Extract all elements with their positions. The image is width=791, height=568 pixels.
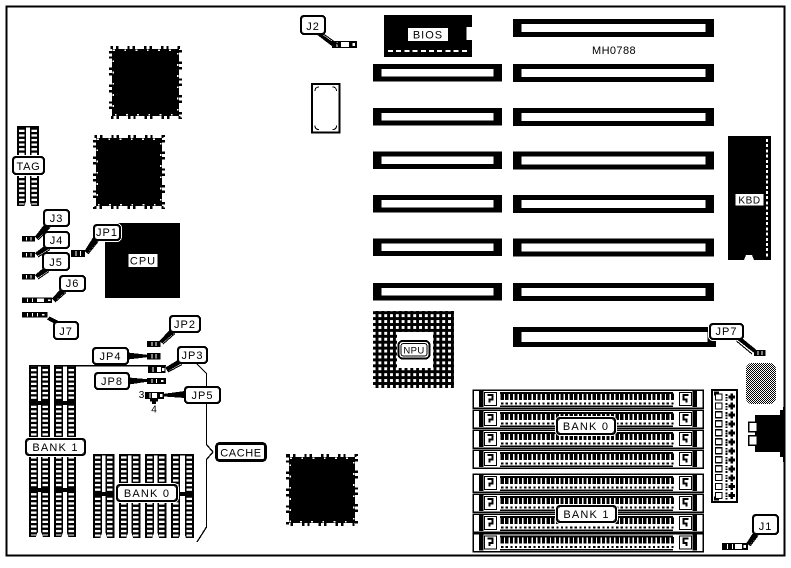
svg-text:BANK 1: BANK 1: [563, 509, 609, 521]
svg-text:CACHE: CACHE: [220, 448, 262, 460]
svg-text:4: 4: [151, 405, 157, 416]
svg-text:JP7: JP7: [716, 326, 738, 338]
svg-text:CPU: CPU: [130, 256, 156, 268]
svg-text:BANK 0: BANK 0: [563, 421, 609, 433]
svg-text:J5: J5: [49, 257, 63, 269]
svg-text:MH0788: MH0788: [592, 45, 636, 57]
svg-text:J2: J2: [306, 21, 320, 33]
svg-text:JP5: JP5: [192, 390, 214, 402]
svg-text:JP1: JP1: [96, 227, 118, 239]
svg-text:3: 3: [139, 390, 145, 401]
svg-text:J1: J1: [759, 521, 773, 533]
svg-text:J7: J7: [59, 326, 73, 338]
svg-text:BIOS: BIOS: [413, 30, 443, 42]
svg-text:NPU: NPU: [403, 346, 424, 357]
svg-text:J6: J6: [66, 278, 80, 290]
svg-text:JP4: JP4: [100, 351, 122, 363]
svg-text:J3: J3: [50, 213, 64, 225]
svg-text:JP2: JP2: [174, 319, 196, 331]
svg-text:TAG: TAG: [17, 161, 41, 173]
svg-text:BANK 1: BANK 1: [32, 442, 78, 454]
svg-text:BANK 0: BANK 0: [124, 488, 170, 500]
svg-text:KBD: KBD: [738, 196, 760, 207]
svg-text:JP3: JP3: [182, 350, 204, 362]
svg-text:JP8: JP8: [101, 376, 123, 388]
svg-text:J4: J4: [50, 235, 64, 247]
